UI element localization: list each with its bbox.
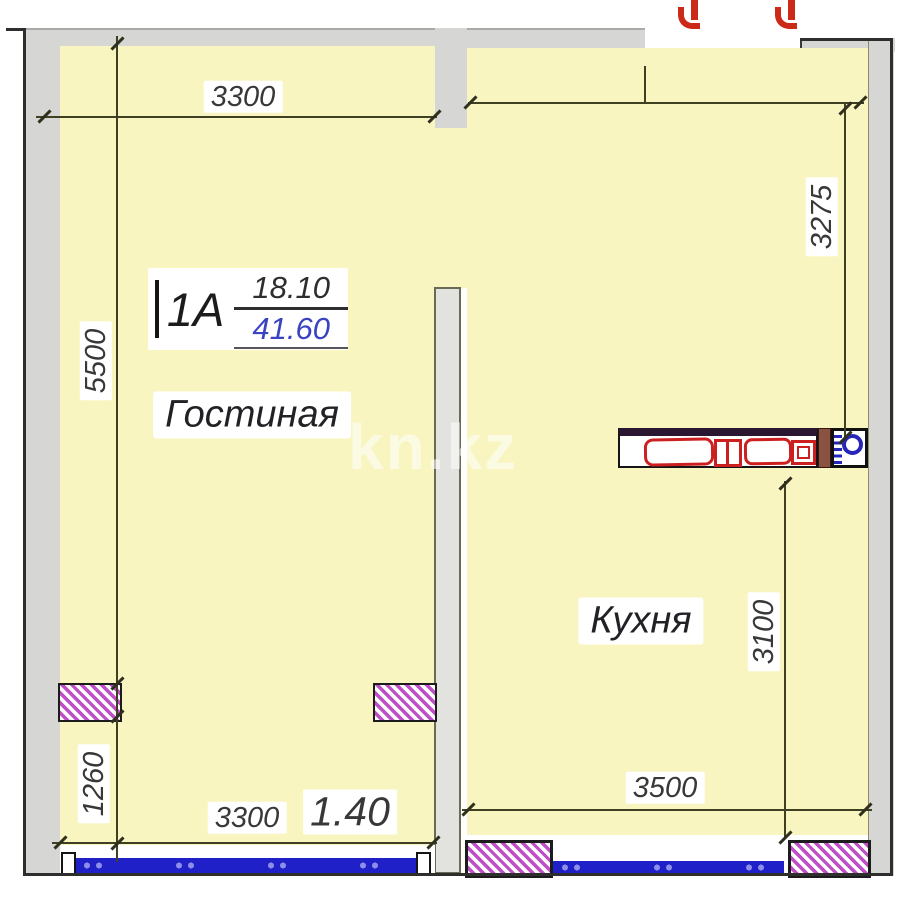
dim-extension-stub <box>644 66 646 103</box>
dim-label-kitchen-height-lower: 3100 <box>748 593 780 672</box>
balcony-door-marker-icon <box>775 0 801 34</box>
window-jamb <box>61 852 76 875</box>
watermark: kn.kz <box>348 410 518 484</box>
label-kitchen: Кухня <box>578 598 703 645</box>
window-jamb <box>416 852 431 875</box>
outline-top-right <box>800 38 893 41</box>
apartment-info-bar <box>155 280 159 338</box>
outline-right <box>890 38 893 876</box>
balcony-door-marker-icon <box>678 0 704 34</box>
outline-top-left-corner <box>6 28 26 31</box>
dim-label-living-lower-height: 1260 <box>78 745 110 824</box>
window-living-glass <box>73 858 417 873</box>
partition-wall <box>434 287 461 874</box>
room-passage-opening <box>435 128 467 288</box>
outline-bottom <box>23 873 893 876</box>
dim-label-living-width-bottom: 3300 <box>208 802 287 834</box>
kitchen-appliance <box>791 440 816 465</box>
dim-label-kitchen-height-upper: 3275 <box>806 178 838 257</box>
dim-line-living-bottom <box>52 842 437 844</box>
apartment-area-fraction: 18.10 41.60 <box>234 270 348 349</box>
kitchen-sink <box>644 437 714 466</box>
heater-coil-icon <box>834 432 842 464</box>
wall-left <box>23 28 60 876</box>
apartment-room-area: 18.10 <box>234 270 348 310</box>
dim-label-living-width-top: 3300 <box>204 81 283 113</box>
apartment-total-area: 41.60 <box>234 310 348 347</box>
label-living-room: Гостиная <box>153 392 351 439</box>
dim-line-kitchen-top <box>468 102 864 104</box>
counter-wood-section <box>818 428 831 468</box>
dim-line-right-upper <box>844 103 846 437</box>
dim-label-living-height: 5500 <box>80 322 112 401</box>
dim-line-left-vertical <box>116 36 118 862</box>
dim-line-kitchen-bottom <box>462 809 872 811</box>
kitchen-appliance <box>714 439 742 467</box>
apartment-info-box: 1A 18.10 41.60 <box>148 268 348 350</box>
dim-line-right-lower <box>784 481 786 839</box>
vent-shaft-hatch <box>373 683 437 722</box>
dim-label-living-bottom-extra: 1.40 <box>303 789 397 834</box>
apartment-type: 1A <box>167 282 225 337</box>
kitchen-stove <box>744 438 792 466</box>
floor-plan-canvas: 3300 5500 1260 3275 3100 3300 1.40 3500 … <box>0 0 924 900</box>
dim-line-living-top <box>36 116 437 118</box>
dim-label-kitchen-width-bottom: 3500 <box>626 772 705 804</box>
outline-left <box>23 28 26 876</box>
